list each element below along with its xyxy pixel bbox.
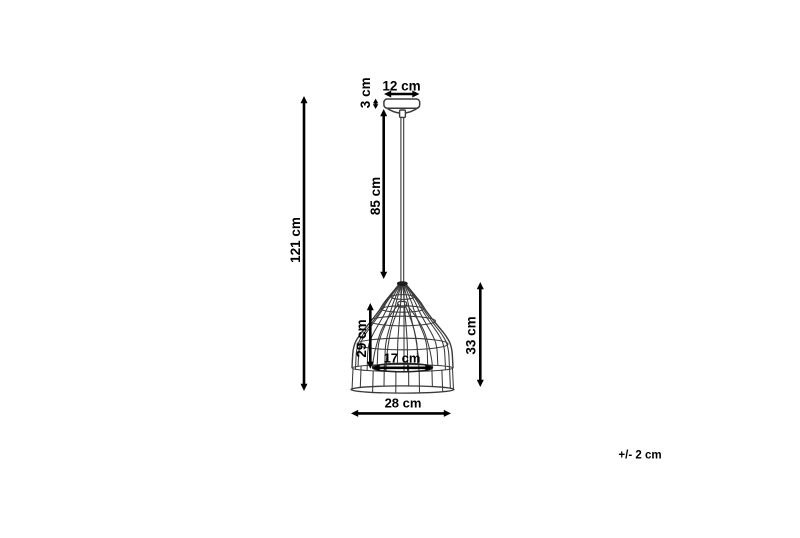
svg-text:28 cm: 28 cm: [385, 395, 422, 410]
svg-text:17 cm: 17 cm: [384, 351, 421, 366]
svg-text:85 cm: 85 cm: [368, 177, 383, 215]
svg-text:3 cm: 3 cm: [358, 77, 373, 108]
svg-text:33 cm: 33 cm: [464, 316, 479, 354]
svg-text:12 cm: 12 cm: [382, 78, 420, 93]
svg-text:+/- 2 cm: +/- 2 cm: [618, 450, 661, 462]
svg-text:121 cm: 121 cm: [288, 217, 303, 263]
svg-text:29 cm: 29 cm: [354, 319, 369, 357]
